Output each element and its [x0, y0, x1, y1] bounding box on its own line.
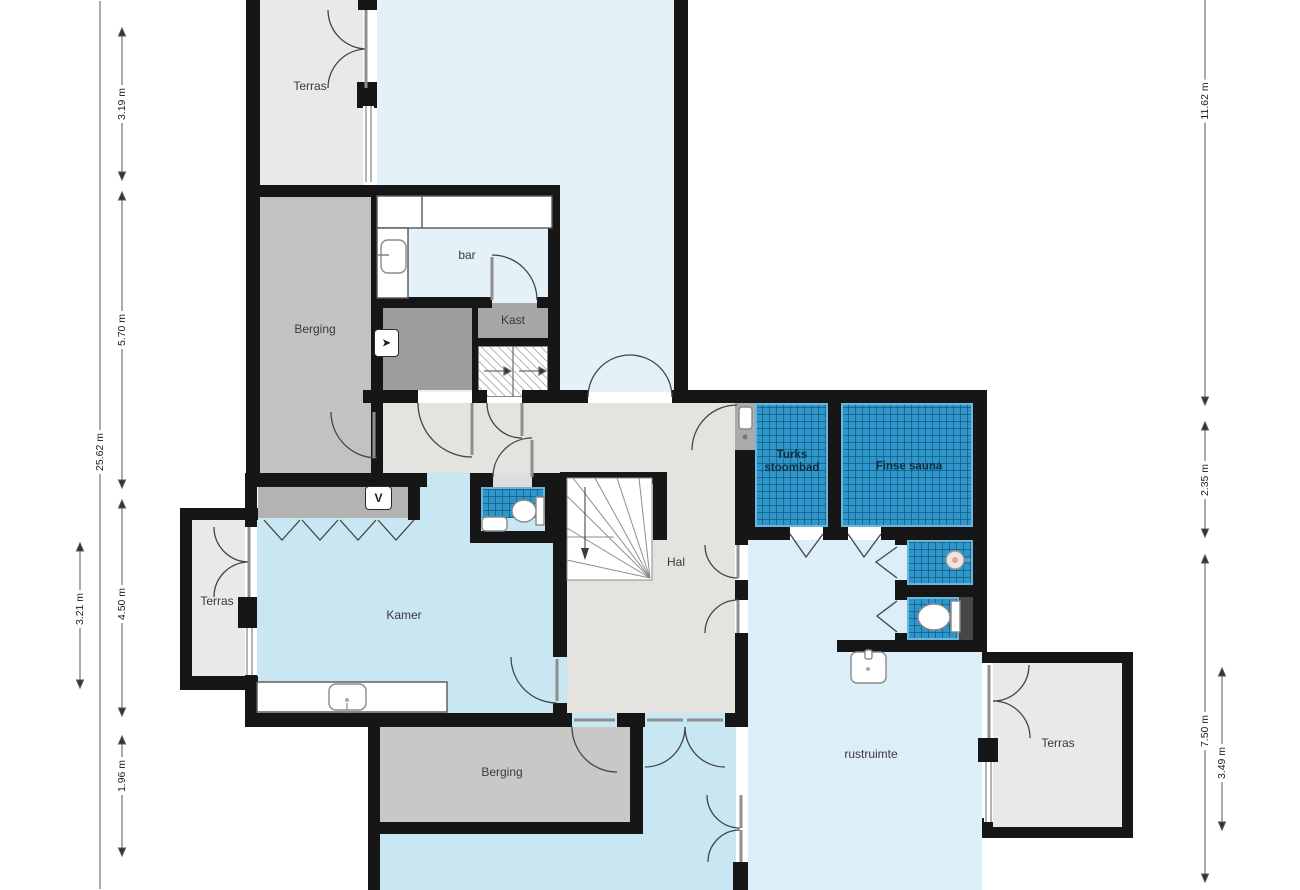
dim-label-4-50: 4.50 m	[116, 585, 128, 623]
wall	[630, 727, 643, 834]
wall	[617, 713, 645, 727]
wall	[478, 338, 548, 346]
berging-doorway-floor	[572, 713, 617, 727]
hook-icon: V	[365, 486, 392, 510]
room-hal-floor	[567, 403, 735, 715]
room-label-hal: Hal	[667, 556, 685, 570]
wall	[245, 473, 427, 487]
wall	[368, 822, 643, 834]
wall	[674, 0, 688, 403]
dim-label-1-96: 1.96 m	[116, 757, 128, 795]
wall	[895, 585, 973, 597]
wall	[560, 472, 667, 484]
room-toilet-floor	[907, 597, 959, 640]
dim-label-3-21: 3.21 m	[74, 590, 86, 628]
wall	[180, 508, 192, 690]
wall	[725, 713, 748, 727]
dim-label-2-35: 2.35 m	[1199, 461, 1211, 499]
room-label-rustruimte: rustruimte	[844, 748, 897, 762]
kamer-entry-floor	[418, 487, 472, 518]
room-terras-top-floor	[260, 0, 363, 190]
wc-doorway-floor	[493, 473, 532, 487]
wall	[357, 82, 377, 108]
wall	[363, 390, 418, 403]
wall	[672, 390, 987, 403]
wall	[733, 862, 748, 890]
wall	[246, 197, 260, 473]
wall	[545, 487, 553, 531]
boiler-icon-glyph: ➤	[382, 338, 390, 349]
shower-niche-floor	[735, 403, 755, 450]
wall	[548, 190, 560, 403]
wall	[1122, 652, 1133, 838]
room-label-terras-top: Terras	[293, 80, 326, 94]
dim-label-25-62: 25.62 m	[94, 430, 106, 474]
wall	[246, 185, 560, 197]
wall	[823, 527, 848, 540]
floor-plan: ➤ V	[0, 0, 1300, 890]
wall	[472, 390, 487, 403]
wall	[358, 0, 377, 10]
wall	[748, 450, 755, 527]
wall	[653, 472, 667, 540]
dim-label-7-50: 7.50 m	[1199, 712, 1211, 750]
room-label-bar: bar	[458, 249, 475, 263]
dim-label-3-19: 3.19 m	[116, 85, 128, 123]
room-label-finse-sauna: Finse sauna	[876, 460, 942, 473]
wall	[553, 487, 567, 657]
wall	[180, 676, 258, 690]
pool-doorway-floor	[645, 713, 725, 727]
boiler-icon: ➤	[374, 329, 399, 357]
room-label-turks-stoombad: Turks stoombad	[757, 449, 827, 475]
room-label-kast: Kast	[501, 314, 525, 328]
shaft-sliver	[959, 597, 973, 640]
wall	[978, 738, 998, 762]
wall	[245, 713, 572, 727]
room-label-terras-right: Terras	[1041, 737, 1074, 751]
wall	[735, 633, 748, 713]
kamer-doorway-floor	[427, 473, 470, 487]
wall	[735, 527, 790, 540]
wall	[238, 597, 257, 628]
room-label-kamer: Kamer	[386, 609, 421, 623]
wall	[735, 580, 748, 600]
wall	[368, 713, 380, 890]
wall	[982, 652, 1133, 663]
wall	[828, 403, 841, 527]
hook-icon-glyph: V	[374, 491, 382, 505]
room-shower-floor	[907, 540, 973, 585]
wall	[180, 508, 258, 520]
wall	[470, 473, 493, 487]
room-label-berging-top: Berging	[294, 323, 335, 337]
wall	[522, 390, 588, 403]
hal-kamer-doorway	[553, 657, 567, 703]
room-label-berging-bottom: Berging	[481, 766, 522, 780]
wall	[973, 390, 987, 652]
wall	[895, 633, 907, 640]
dim-label-5-70: 5.70 m	[116, 311, 128, 349]
dim-label-11-62: 11.62 m	[1199, 79, 1211, 122]
wall	[245, 487, 257, 527]
wall	[837, 640, 987, 652]
wall	[982, 818, 993, 827]
wall	[470, 531, 567, 543]
wall	[246, 0, 260, 197]
wall	[408, 487, 420, 520]
wall	[881, 527, 987, 540]
dim-label-3-49: 3.49 m	[1216, 744, 1228, 782]
wall	[895, 540, 907, 545]
room-label-terras-left: Terras	[200, 595, 233, 609]
wall	[982, 827, 1133, 838]
